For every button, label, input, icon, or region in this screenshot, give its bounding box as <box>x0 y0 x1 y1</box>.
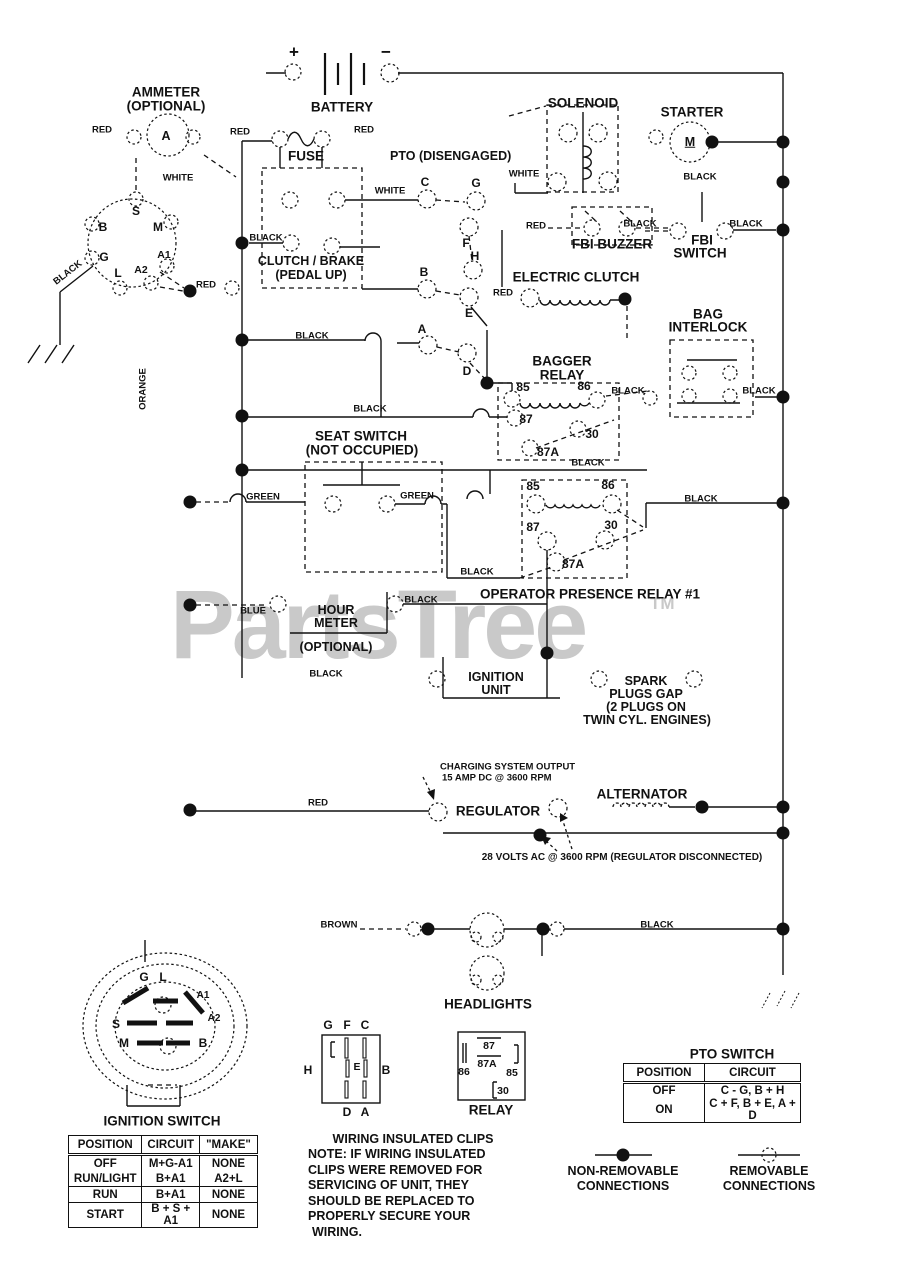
relay-title: RELAY <box>469 1103 514 1117</box>
spark-plugs-label-line4: TWIN CYL. ENGINES) <box>583 714 711 727</box>
legend-removable-line1: REMOVABLE <box>730 1165 809 1178</box>
table-row: ON C + F, B + E, A + D <box>624 1098 801 1123</box>
block-pin-e: E <box>353 1062 360 1073</box>
fbi-switch-label-line2: SWITCH <box>673 246 726 260</box>
wire-label-black: BLACK <box>353 404 386 414</box>
block-pin-b: B <box>382 1064 391 1076</box>
column-header: "MAKE" <box>199 1136 257 1155</box>
wire-label-white: WHITE <box>375 186 406 196</box>
regulator-label: REGULATOR <box>456 804 540 818</box>
pto-switch-title: PTO SWITCH <box>690 1047 775 1061</box>
connector-pin-a1: A1 <box>157 250 170 261</box>
wire-label-black: BLACK <box>460 567 493 577</box>
wire-label-black: BLACK <box>404 595 437 605</box>
bagger-pin-87a: 87A <box>537 446 559 458</box>
solenoid-label: SOLENOID <box>548 96 619 110</box>
connector-pin-a2: A2 <box>134 265 147 276</box>
bagger-relay-label-line1: BAGGER <box>532 354 591 368</box>
legend-nonremovable-line1: NON-REMOVABLE <box>568 1165 679 1178</box>
oprelay-pin-30: 30 <box>604 519 617 531</box>
block-pin-a: A <box>361 1106 370 1118</box>
wire-label-red: RED <box>526 221 546 231</box>
igswitch-pin-s: S <box>112 1018 120 1030</box>
pto-pin-g: G <box>471 177 480 189</box>
cell-circuit: B+A1 <box>142 1171 199 1187</box>
ignition-switch-title: IGNITION SWITCH <box>104 1114 221 1128</box>
wire-label-white: WHITE <box>163 173 194 183</box>
starter-label: STARTER <box>661 105 724 119</box>
table-row: RUN/LIGHT B+A1 A2+L <box>69 1171 258 1187</box>
bagger-pin-86: 86 <box>577 380 590 392</box>
pto-pin-c: C <box>421 176 430 188</box>
cell-circuit: C + F, B + E, A + D <box>704 1098 800 1123</box>
legend-removable-line2: CONNECTIONS <box>723 1180 815 1193</box>
connector-pin-l: L <box>114 267 121 279</box>
wire-label-red: RED <box>230 127 250 137</box>
column-header: POSITION <box>69 1136 142 1155</box>
column-header: CIRCUIT <box>704 1064 800 1083</box>
spark-plugs-label-line1: SPARK <box>625 675 668 688</box>
cell-circuit: C - G, B + H <box>704 1083 800 1099</box>
bag-interlock-label-line2: INTERLOCK <box>669 320 748 334</box>
igswitch-pin-a2: A2 <box>208 1014 221 1024</box>
connector-pin-g: G <box>99 251 108 263</box>
block-pin-h: H <box>304 1064 313 1076</box>
wire-label-green: GREEN <box>246 492 280 502</box>
ammeter-label-line2: (OPTIONAL) <box>127 99 206 113</box>
wire-label-red: RED <box>196 280 216 290</box>
clutch-brake-label-line2: (PEDAL UP) <box>275 269 346 282</box>
column-header: POSITION <box>624 1064 705 1083</box>
pto-pin-d: D <box>463 365 472 377</box>
relay-pin-87a: 87A <box>477 1059 496 1070</box>
spark-plugs-label-line2: PLUGS GAP <box>609 688 683 701</box>
wire-label-black: BLACK <box>683 172 716 182</box>
pto-pin-e: E <box>465 307 473 319</box>
wire-label-green: GREEN <box>400 491 434 501</box>
wiring-note-line6: WIRING. <box>312 1226 362 1239</box>
oprelay-pin-87: 87 <box>526 521 539 533</box>
wire-label-blue: BLUE <box>240 606 266 616</box>
cell-position: OFF <box>69 1155 142 1172</box>
alternator-label: ALTERNATOR <box>597 787 688 801</box>
cell-circuit: B + S + A1 <box>142 1203 199 1228</box>
pto-pin-h: H <box>471 250 480 262</box>
pto-disengaged-label: PTO (DISENGAGЕD) <box>390 150 511 163</box>
table-header-row: POSITION CIRCUIT <box>624 1064 801 1083</box>
wire-label-red: RED <box>493 288 513 298</box>
hour-meter-label-line1: HOUR <box>318 604 355 617</box>
ammeter-letter: A <box>161 130 170 143</box>
bagger-pin-30: 30 <box>585 428 598 440</box>
wiring-diagram-page: PartsTree TM <box>0 0 904 1280</box>
wire-label-black: BLACK <box>684 494 717 504</box>
wire-label-orange: ORANGE <box>138 368 148 410</box>
seat-switch-label-line1: SEAT SWITCH <box>315 429 407 443</box>
wire-label-red: RED <box>354 125 374 135</box>
wiring-note-line5: PROPERLY SECURE YOUR <box>308 1210 470 1223</box>
battery-plus-sign: + <box>289 44 299 61</box>
igswitch-pin-b: B <box>199 1037 208 1049</box>
block-pin-f: F <box>343 1019 350 1031</box>
hour-meter-label-line3: (OPTIONAL) <box>300 641 373 654</box>
block-pin-g: G <box>323 1019 332 1031</box>
wiring-note-line2: CLIPS WERE REMOVED FOR <box>308 1164 482 1177</box>
cell-make: NONE <box>199 1155 257 1172</box>
bagger-pin-87: 87 <box>519 413 532 425</box>
cell-position: ON <box>624 1098 705 1123</box>
wiring-note-line1: NOTE: IF WIRING INSULATED <box>308 1148 486 1161</box>
wiring-note-line4: SHOULD BE REPLACED TO <box>308 1195 474 1208</box>
electric-clutch-label: ELECTRIC CLUTCH <box>513 270 640 284</box>
igswitch-pin-m: M <box>119 1037 129 1049</box>
cell-make: NONE <box>199 1203 257 1228</box>
pto-switch-table: POSITION CIRCUIT OFF C - G, B + H ON C +… <box>623 1063 801 1123</box>
ammeter-label-line1: AMMETER <box>132 85 200 99</box>
wire-label-black: BLACK <box>742 386 775 396</box>
wire-label-brown: BROWN <box>321 920 358 930</box>
igswitch-pin-a1: A1 <box>197 991 210 1001</box>
wire-label-black: BLACK <box>295 331 328 341</box>
cell-make: NONE <box>199 1187 257 1203</box>
battery-label: BATTERY <box>311 100 373 114</box>
wire-label-black: BLACK <box>640 920 673 930</box>
connector-pin-m: M <box>153 221 163 233</box>
bagger-pin-85: 85 <box>516 381 529 393</box>
spark-plugs-label-line3: (2 PLUGS ON <box>606 701 686 714</box>
fbi-buzzer-label: FBI BUZZER <box>572 237 652 251</box>
wire-label-white: WHITE <box>509 169 540 179</box>
clutch-brake-label-line1: CLUTCH / BRAKE <box>258 255 364 268</box>
cell-position: RUN/LIGHT <box>69 1171 142 1187</box>
table-row: RUN B+A1 NONE <box>69 1187 258 1203</box>
relay-pin-85: 85 <box>506 1068 518 1079</box>
table-row: START B + S + A1 NONE <box>69 1203 258 1228</box>
cell-position: RUN <box>69 1187 142 1203</box>
pto-pin-b: B <box>420 266 429 278</box>
oprelay-pin-86: 86 <box>601 479 614 491</box>
volts-note: 28 VOLTS AC @ 3600 RPM (REGULATOR DISCON… <box>482 853 763 863</box>
oprelay-pin-87a: 87A <box>562 558 584 570</box>
wire-label-black: BLACK <box>729 219 762 229</box>
cell-circuit: M+G-A1 <box>142 1155 199 1172</box>
wiring-note-title: WIRING INSULATED CLIPS <box>333 1133 494 1146</box>
pto-pin-f: F <box>462 237 469 249</box>
charging-output-note-line1: CHARGING SYSTEM OUTPUT <box>440 762 575 772</box>
seat-switch-label-line2: (NOT OCCUPIED) <box>306 443 419 457</box>
wire-label-black: BLACK <box>611 386 644 396</box>
wire-label-black: BLACK <box>249 233 282 243</box>
ground-symbol-bottom-right <box>762 991 799 1008</box>
pto-pin-a: A <box>418 323 427 335</box>
relay-pin-86: 86 <box>458 1067 470 1078</box>
ignition-switch-bars <box>123 988 203 1043</box>
ignition-unit-label-line2: UNIT <box>481 684 510 697</box>
cell-position: OFF <box>624 1083 705 1099</box>
column-header: CIRCUIT <box>142 1136 199 1155</box>
cell-position: START <box>69 1203 142 1228</box>
igswitch-pin-g: G <box>139 971 148 983</box>
wire-label-black: BLACK <box>571 458 604 468</box>
operator-presence-relay-label: OPERATOR PRESENCE RELAY #1 <box>480 587 700 601</box>
block-pin-d: D <box>343 1106 352 1118</box>
relay-pin-30: 30 <box>497 1086 509 1097</box>
igswitch-pin-l: L <box>159 971 166 983</box>
charging-output-note-line2: 15 AMP DC @ 3600 RPM <box>442 773 552 783</box>
cell-make: A2+L <box>199 1171 257 1187</box>
table-header-row: POSITION CIRCUIT "MAKE" <box>69 1136 258 1155</box>
table-row: OFF M+G-A1 NONE <box>69 1155 258 1172</box>
fuse-label: FUSE <box>288 149 324 163</box>
starter-letter: M <box>685 136 695 149</box>
battery-minus-sign: − <box>381 44 391 61</box>
headlights-label: HEADLIGHTS <box>444 997 532 1011</box>
cell-circuit: B+A1 <box>142 1187 199 1203</box>
wire-label-black: BLACK <box>623 219 656 229</box>
wire-label-red: RED <box>308 798 328 808</box>
hour-meter-label-line2: METER <box>314 617 358 630</box>
relay-pin-87: 87 <box>483 1041 495 1052</box>
ignition-unit-label-line1: IGNITION <box>468 671 524 684</box>
connector-pin-s: S <box>132 205 140 217</box>
connector-pin-b: B <box>99 221 108 233</box>
wire-label-red: RED <box>92 125 112 135</box>
legend-nonremovable-line2: CONNECTIONS <box>577 1180 669 1193</box>
table-row: OFF C - G, B + H <box>624 1083 801 1099</box>
block-pin-c: C <box>361 1019 370 1031</box>
wiring-note-line3: SERVICING OF UNIT, THEY <box>308 1179 469 1192</box>
wire-label-black: BLACK <box>309 669 342 679</box>
ignition-switch-table: POSITION CIRCUIT "MAKE" OFF M+G-A1 NONE … <box>68 1135 258 1228</box>
oprelay-pin-85: 85 <box>526 480 539 492</box>
